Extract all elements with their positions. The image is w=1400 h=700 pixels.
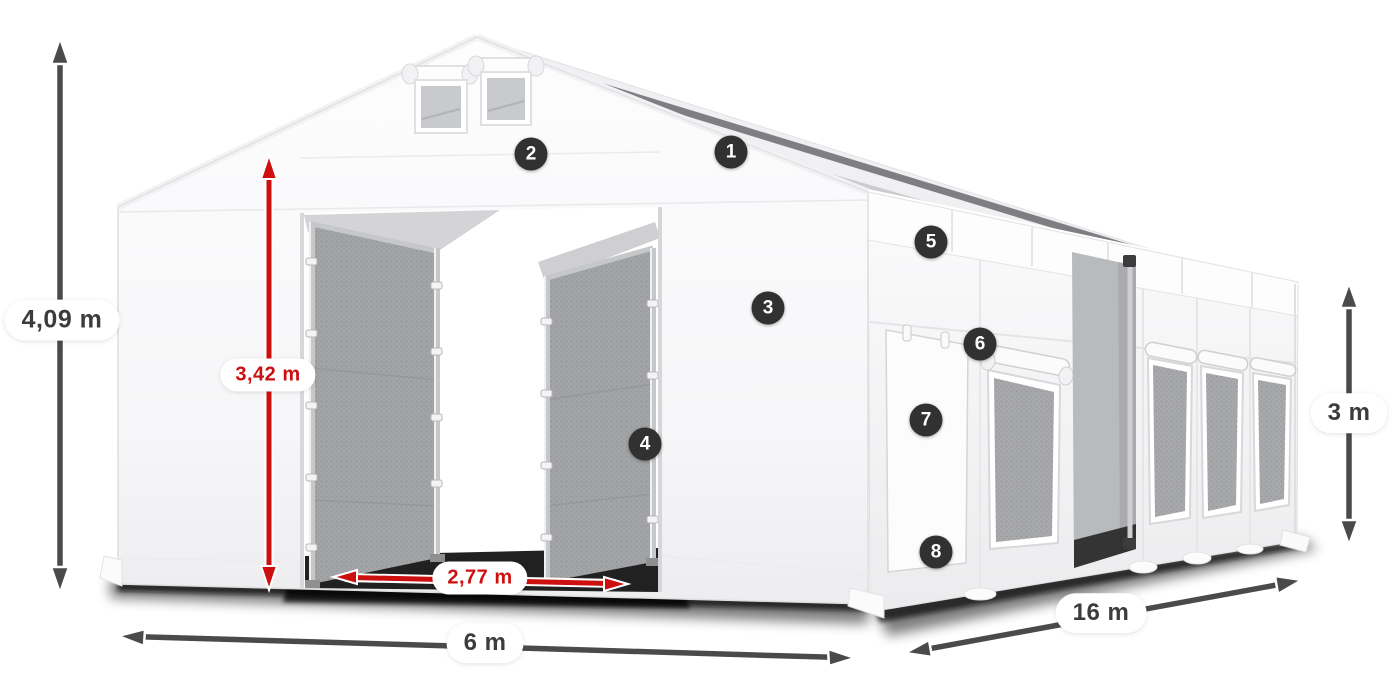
feature-marker-5[interactable]: 5 [915, 226, 948, 259]
side-opening [1072, 252, 1136, 568]
front-left-base-flap [100, 556, 122, 586]
dimension-label-total-height: 4,09 m [8, 303, 117, 338]
side-window-2 [1144, 341, 1198, 524]
side-window-3 [1197, 349, 1249, 518]
mesh-gate-right [538, 222, 661, 586]
tent-illustration [0, 0, 1400, 700]
feature-marker-2[interactable]: 2 [515, 138, 548, 171]
side-window-4 [1249, 357, 1296, 511]
side-door [886, 325, 968, 572]
feature-marker-4[interactable]: 4 [629, 428, 662, 461]
dimension-label-entrance-height: 3,42 m [223, 362, 312, 389]
feature-marker-6[interactable]: 6 [964, 328, 997, 361]
diagram-canvas: 4,09 m 3,42 m 2,77 m 6 m 16 m 3 m 1 2 3 … [0, 0, 1400, 700]
dimension-label-front-width: 6 m [450, 626, 521, 660]
feature-marker-7[interactable]: 7 [910, 404, 943, 437]
dimension-label-side-length: 16 m [1059, 596, 1144, 630]
dimension-label-entrance-width: 2,77 m [435, 565, 524, 592]
dimension-label-side-wall-height: 3 m [1314, 396, 1385, 430]
feature-marker-3[interactable]: 3 [752, 292, 785, 325]
entrance-opening [302, 207, 661, 592]
feature-marker-1[interactable]: 1 [715, 136, 748, 169]
feature-marker-8[interactable]: 8 [920, 536, 953, 569]
